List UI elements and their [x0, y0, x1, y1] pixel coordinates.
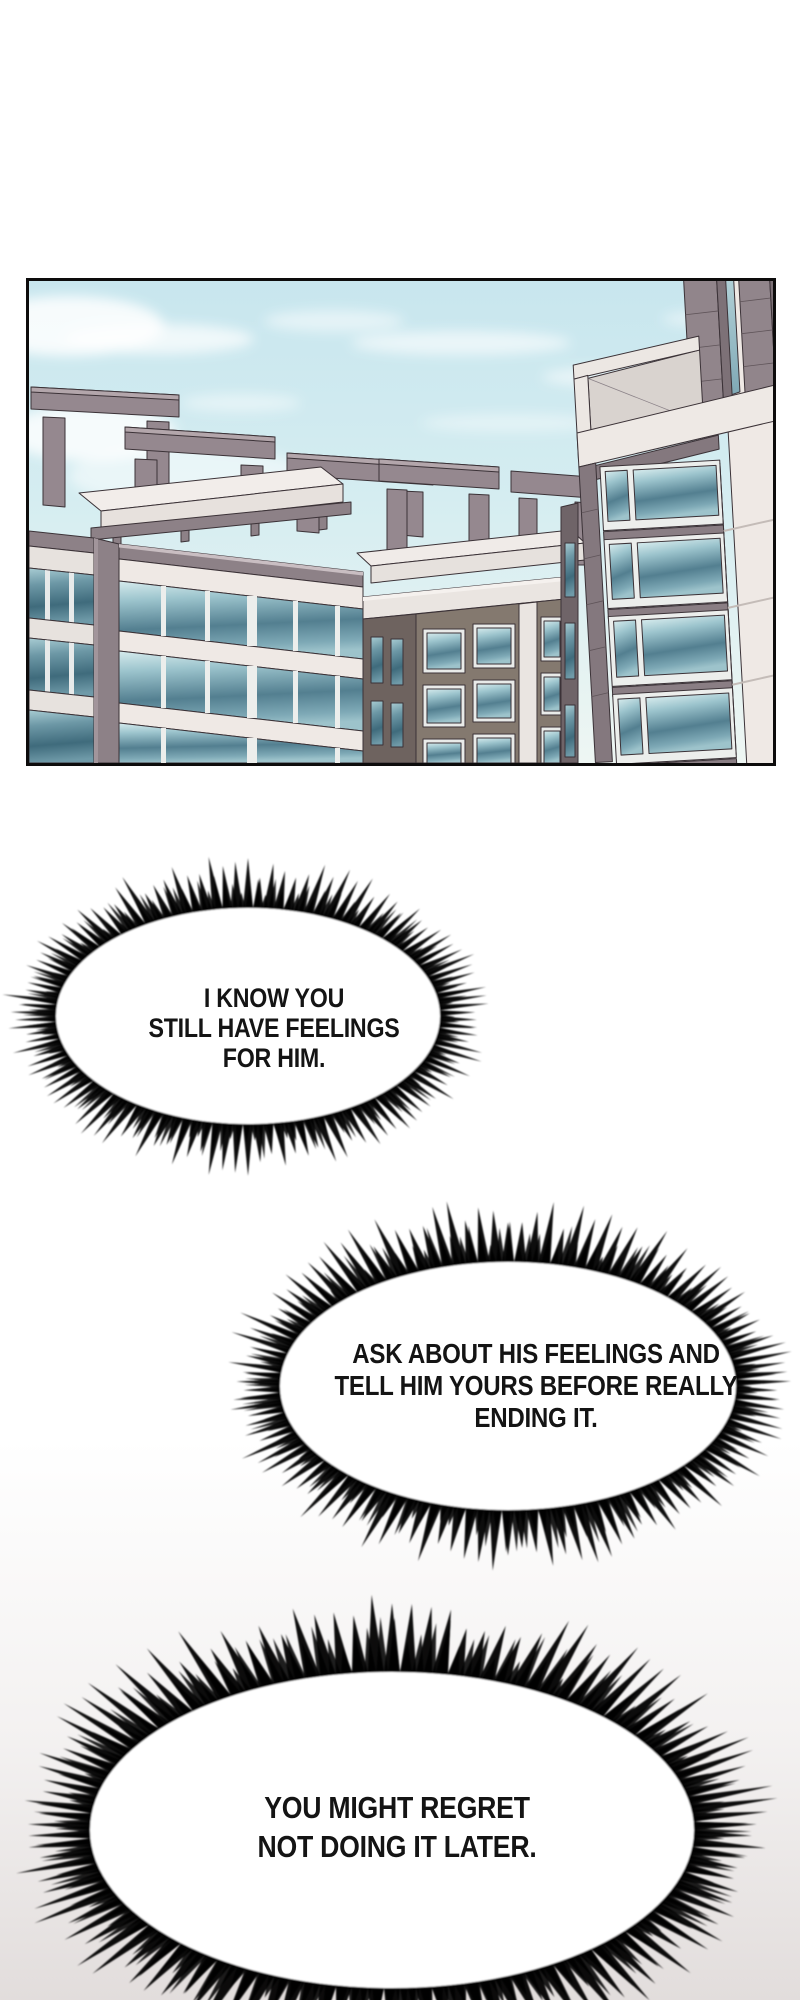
bubble-1-text: I KNOW YOU STILL HAVE FEELINGS FOR HIM. [7, 983, 540, 1073]
comic-page: I KNOW YOU STILL HAVE FEELINGS FOR HIM. … [0, 0, 800, 2000]
bubble-3-text: YOU MIGHT REGRET NOT DOING IT LATER. [130, 1788, 663, 1866]
bubble-2-text: ASK ABOUT HIS FEELINGS AND TELL HIM YOUR… [269, 1338, 800, 1434]
